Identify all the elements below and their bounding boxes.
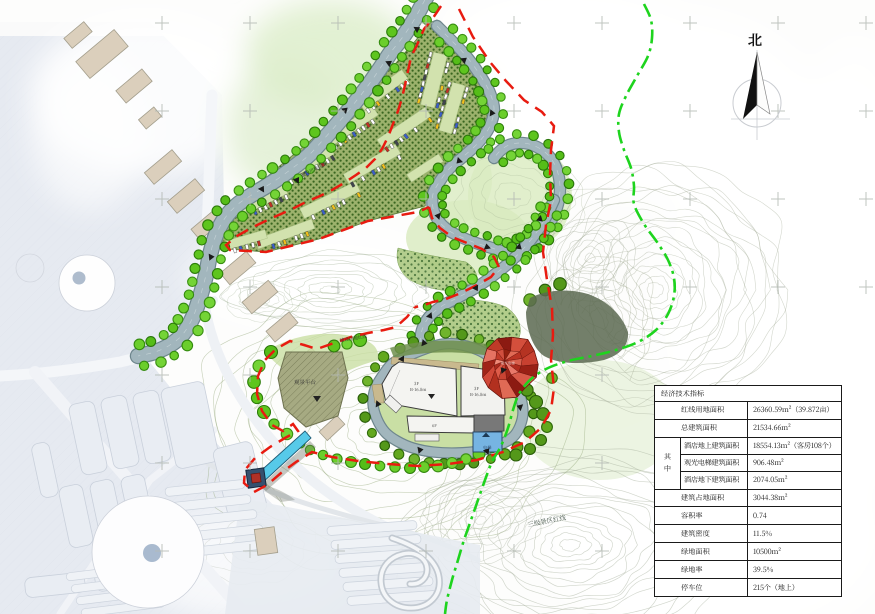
svg-text:观光电梯: 观光电梯 (501, 361, 516, 367)
svg-text:观景平台: 观景平台 (294, 378, 317, 386)
svg-text:B-16.8m: B-16.8m (470, 392, 486, 398)
svg-text:北: 北 (748, 30, 762, 50)
svg-text:6F: 6F (432, 423, 437, 429)
svg-text:B-16.8m: B-16.8m (410, 387, 426, 393)
